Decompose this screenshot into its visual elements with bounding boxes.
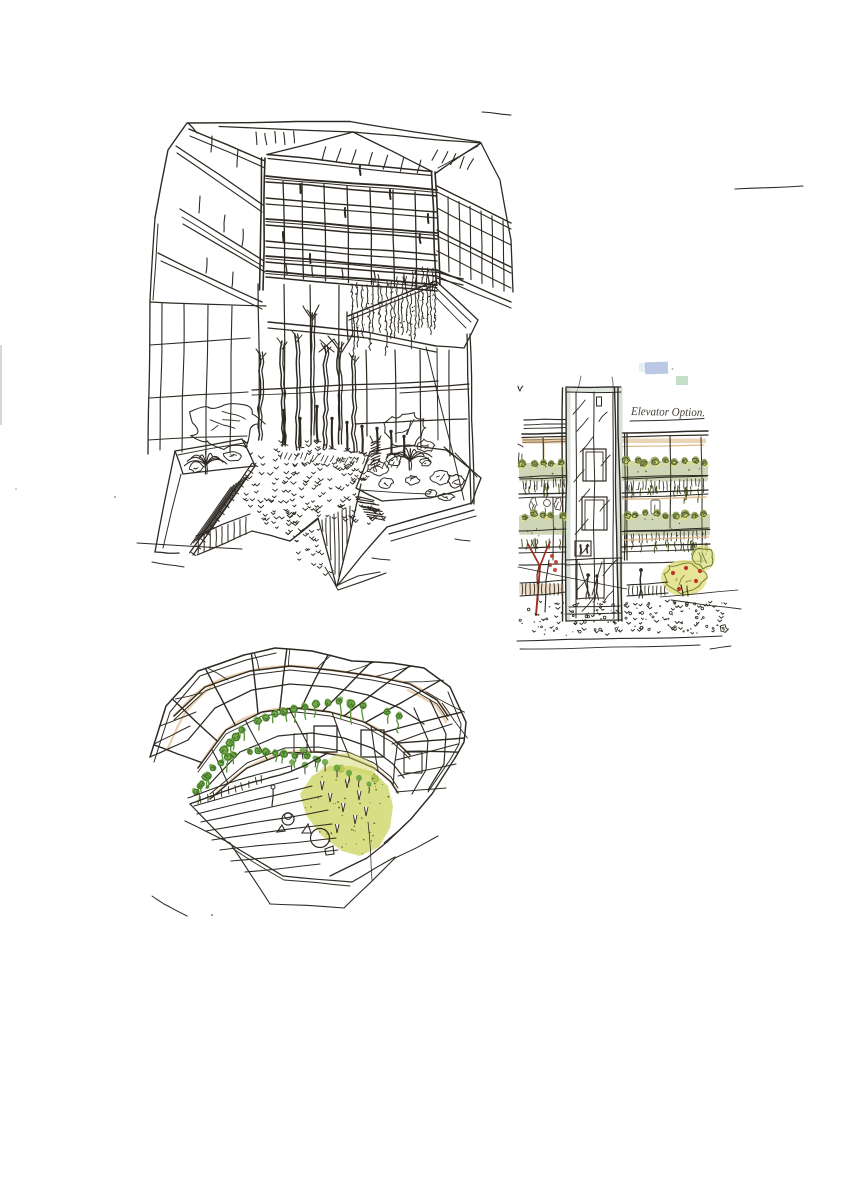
svg-text:Elevator Option.: Elevator Option. xyxy=(630,404,705,419)
